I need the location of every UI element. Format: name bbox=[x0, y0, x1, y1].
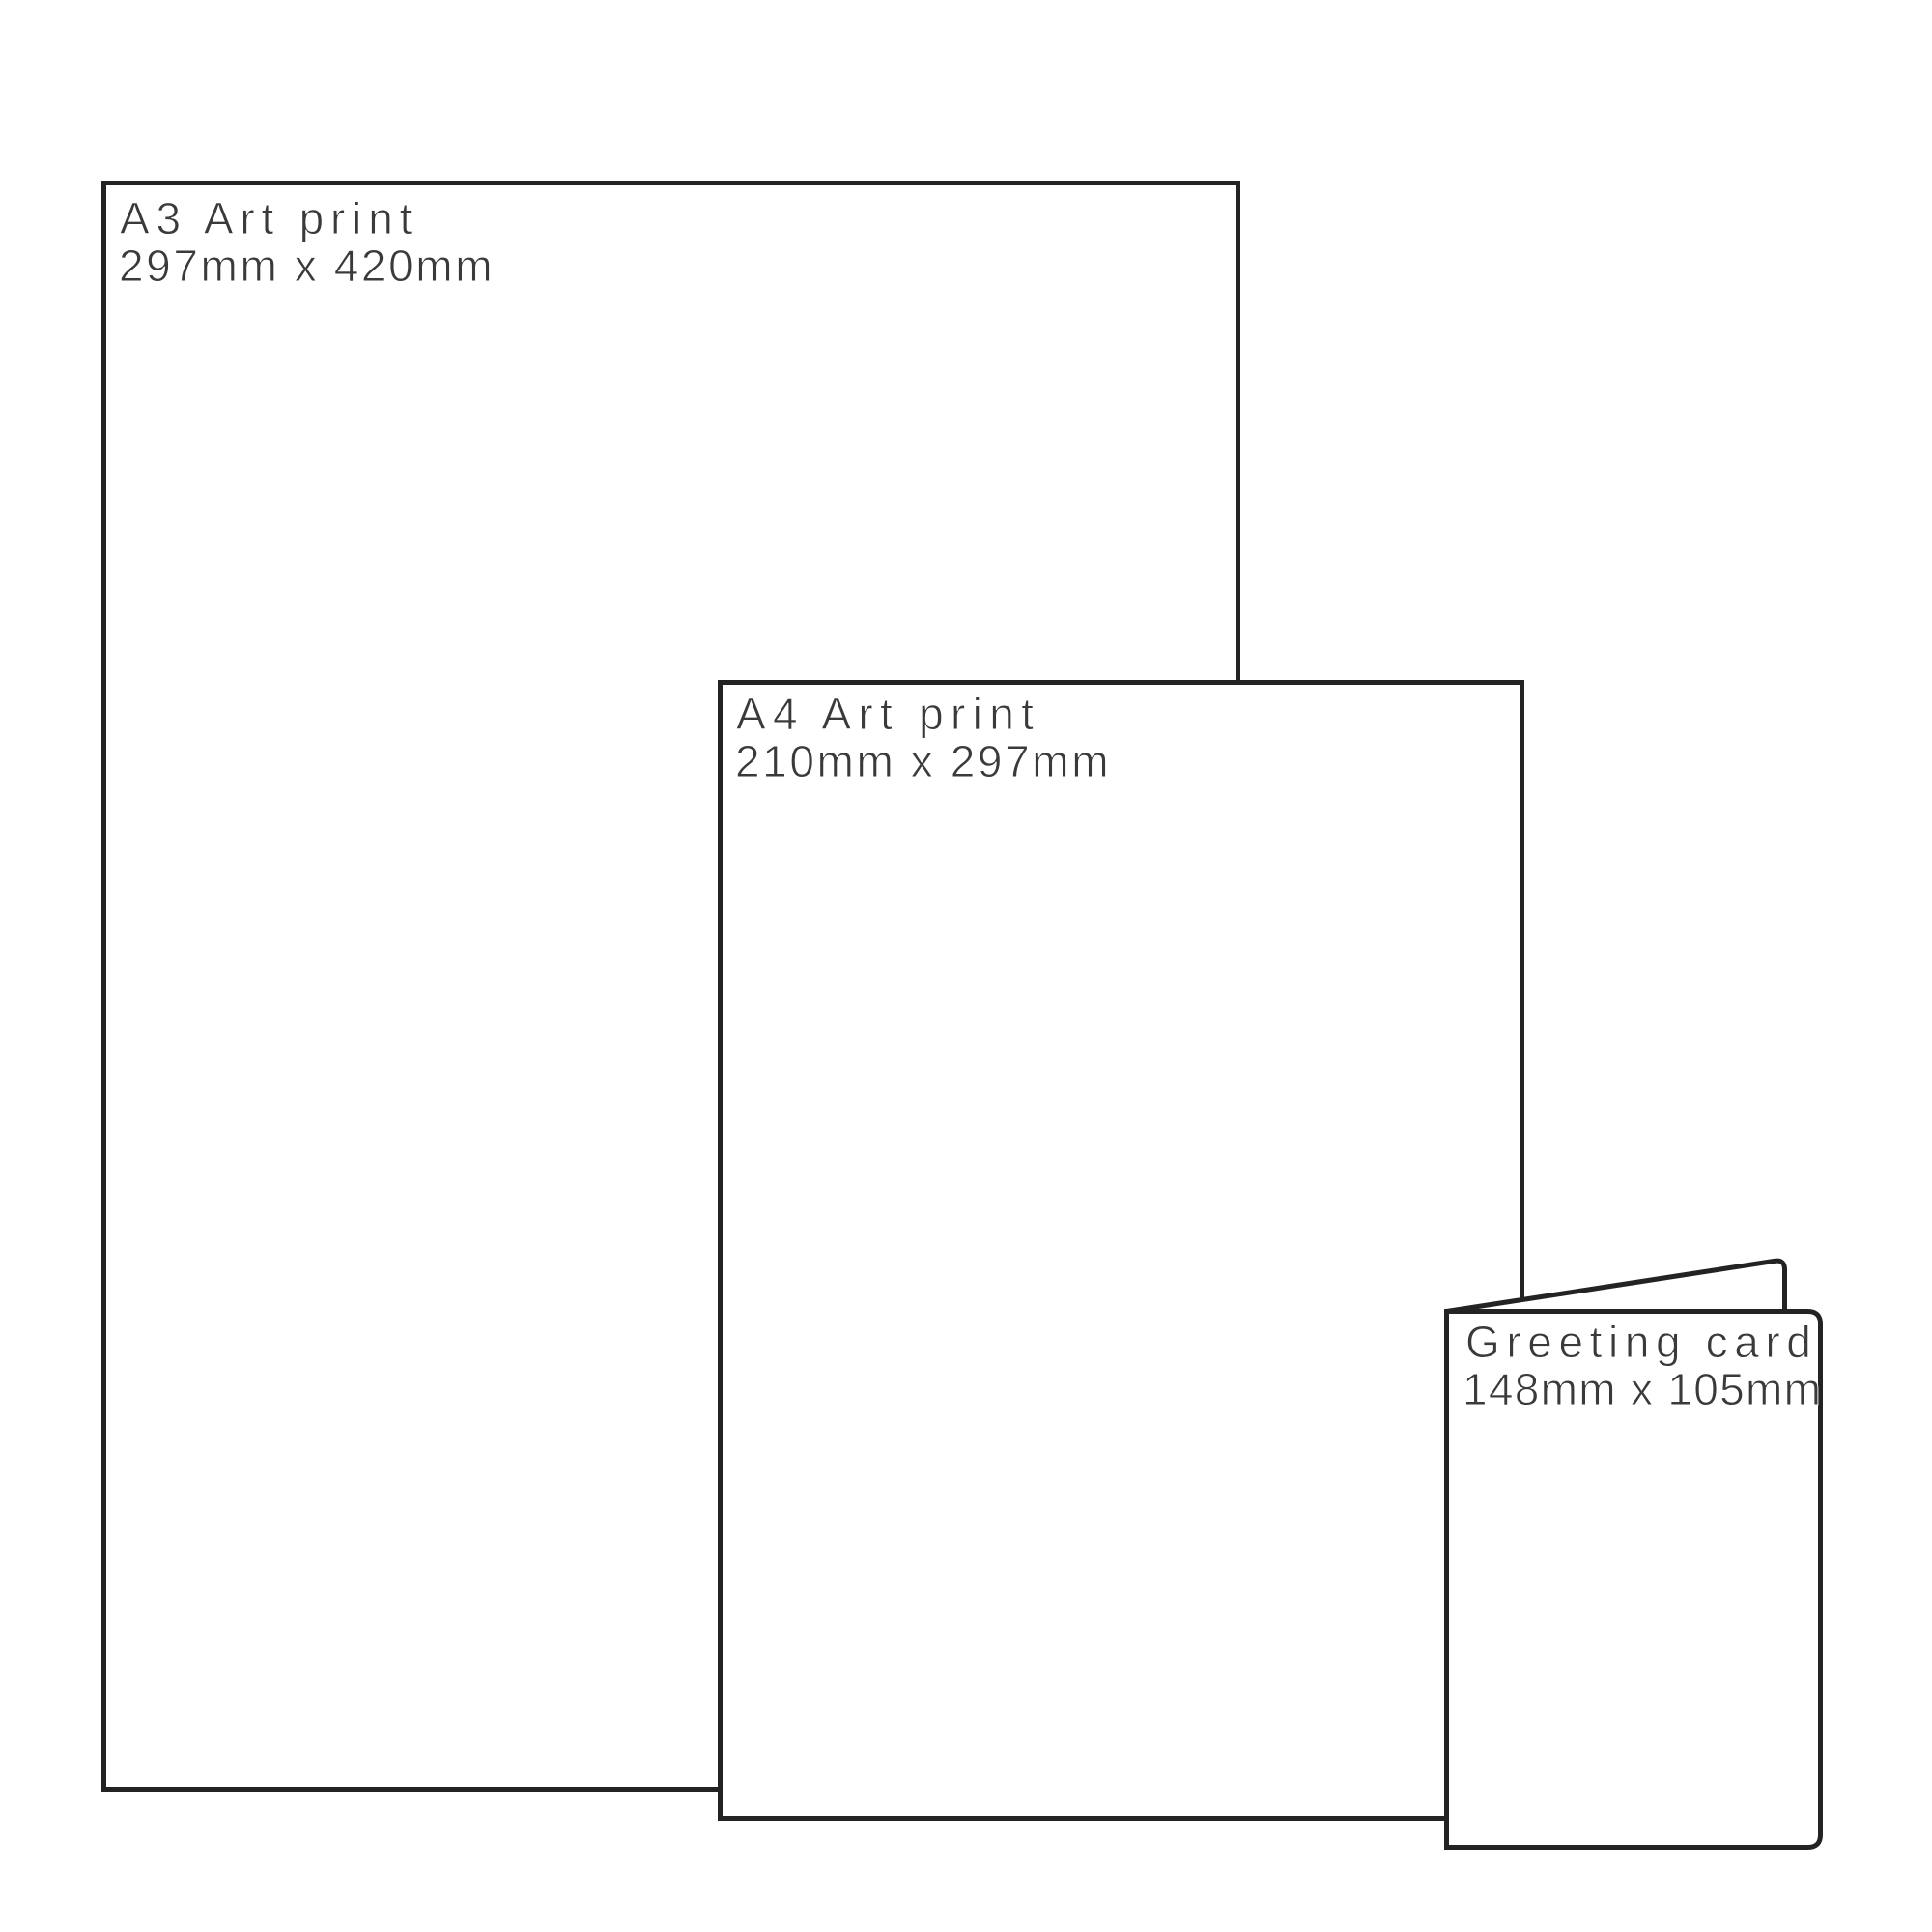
svg-text:Greeting card: Greeting card bbox=[1465, 1317, 1818, 1367]
svg-text:148mm x 105mm: 148mm x 105mm bbox=[1463, 1364, 1822, 1414]
svg-text:210mm x 297mm: 210mm x 297mm bbox=[735, 736, 1111, 786]
svg-text:297mm x 420mm: 297mm x 420mm bbox=[119, 241, 495, 291]
svg-text:A4 Art print: A4 Art print bbox=[736, 689, 1040, 739]
svg-text:A3 Art print: A3 Art print bbox=[120, 193, 418, 243]
